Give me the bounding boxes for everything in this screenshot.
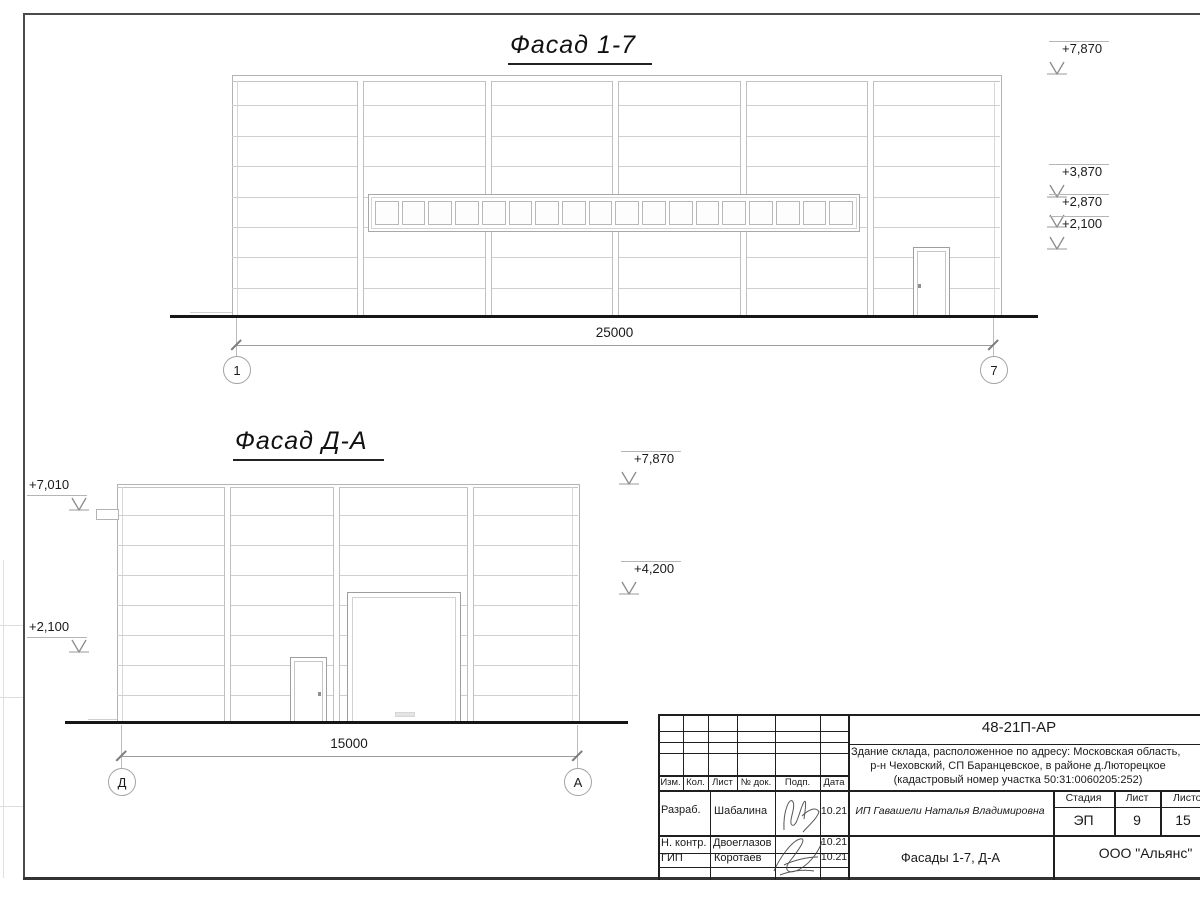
- window-pane: [428, 201, 452, 225]
- panel-line: [117, 575, 578, 576]
- titleblock-hline: [658, 742, 848, 743]
- axis-label: 7: [990, 363, 997, 378]
- level-value: +4,200: [634, 561, 674, 576]
- window-pane: [402, 201, 426, 225]
- rev-header-kol: Кол.: [683, 777, 708, 788]
- dimension-value: 25000: [236, 325, 993, 340]
- axis-bubble-1: 1: [223, 356, 251, 384]
- rev-header-list: Лист: [708, 777, 737, 788]
- column-line: [333, 487, 340, 722]
- role-name: Коротаев: [714, 852, 762, 865]
- edge-line: [994, 81, 995, 316]
- window-pane: [375, 201, 399, 225]
- window-pane: [669, 201, 693, 225]
- axis-bubble-a: А: [564, 768, 592, 796]
- window-pane: [803, 201, 827, 225]
- door-leaf: [917, 251, 946, 317]
- column-line: [467, 487, 474, 722]
- titleblock-address-line1: Здание склада, расположенное по адресу: …: [851, 746, 1180, 759]
- rev-header-doc: № док.: [737, 777, 775, 788]
- sheet-frame-top: [23, 13, 1200, 15]
- window-pane: [722, 201, 746, 225]
- window-pane: [749, 201, 773, 225]
- panel-line: [117, 515, 578, 516]
- facade-da-title-text: Фасад Д-А: [235, 427, 368, 455]
- stage-value: ЭП: [1053, 812, 1114, 829]
- signature-shabalina: [778, 792, 822, 836]
- door: [913, 247, 950, 318]
- sheet-frame-left: [23, 13, 25, 880]
- sheet-number: 9: [1114, 812, 1160, 829]
- gate-handle: [395, 712, 415, 717]
- role-label: ГИП: [661, 852, 683, 865]
- column-line: [357, 81, 364, 316]
- signature-koротаев: [770, 831, 828, 879]
- company-name: ООО "Альянс": [1053, 845, 1200, 862]
- titleblock-hline: [658, 753, 848, 754]
- margin-divider-vertical: [3, 560, 4, 878]
- parapet-line: [117, 487, 578, 488]
- column-line: [867, 81, 874, 316]
- sheet-label: Лист: [1114, 792, 1160, 805]
- dimension-line: [236, 345, 993, 346]
- drawing-sheet: Фасад 1-7 Фасад Д-А +7,870 +3,870 +2,870…: [0, 0, 1200, 900]
- extension-line: [577, 725, 578, 768]
- axis-label: Д: [118, 775, 127, 790]
- level-value: +7,010: [29, 477, 69, 492]
- window-pane: [615, 201, 639, 225]
- axis-label: 1: [233, 363, 240, 378]
- titleblock-address-line2: р-н Чеховский, СП Баранцевское, в районе…: [848, 760, 1188, 773]
- extension-line: [993, 318, 994, 357]
- axis-bubble-d: Д: [108, 768, 136, 796]
- titleblock-hline: [658, 714, 1200, 716]
- window-strip: [368, 194, 860, 232]
- titleblock-address-line3: (кадастровый номер участка 50:31:0060205…: [848, 774, 1188, 787]
- gate: [347, 592, 461, 724]
- ramp-line: [190, 312, 232, 313]
- titleblock-hline: [658, 731, 848, 732]
- client-name: ИП Гавашели Наталья Владимировна: [850, 805, 1050, 818]
- gate-frame: [352, 597, 456, 723]
- stage-label: Стадия: [1053, 792, 1114, 805]
- level-value: +2,100: [1062, 216, 1102, 231]
- facade-da-title: Фасад Д-А: [233, 427, 384, 461]
- level-value: +7,870: [634, 451, 674, 466]
- window-pane: [696, 201, 720, 225]
- axis-label: А: [574, 775, 583, 790]
- door-handle: [318, 692, 321, 696]
- titleblock-code: 48-21П-АР: [848, 719, 1190, 737]
- door: [290, 657, 327, 724]
- role-label: Разраб.: [661, 804, 701, 817]
- window-pane: [509, 201, 533, 225]
- window-pane: [562, 201, 586, 225]
- level-value: +2,100: [29, 619, 69, 634]
- level-value: +2,870: [1062, 194, 1102, 209]
- role-date: 10.21: [820, 805, 848, 818]
- window-strip-frame: [371, 197, 857, 229]
- rev-header-data: Дата: [820, 777, 848, 788]
- level-value: +7,870: [1062, 41, 1102, 56]
- canopy: [96, 509, 119, 520]
- sheets-total: 15: [1160, 812, 1200, 829]
- window-pane: [776, 201, 800, 225]
- window-pane: [642, 201, 666, 225]
- titleblock-hline: [1053, 807, 1200, 808]
- facade-1-7-title: Фасад 1-7: [508, 31, 652, 65]
- rev-header-izm: Изм.: [658, 777, 683, 788]
- window-pane: [535, 201, 559, 225]
- titleblock-hline: [848, 744, 1200, 745]
- ramp-line: [88, 719, 117, 720]
- facade-1-7-title-text: Фасад 1-7: [510, 31, 636, 59]
- titleblock-vline: [658, 714, 660, 880]
- rev-header-podp: Подп.: [775, 777, 820, 788]
- ground-line-facade-1-7: [170, 315, 1038, 318]
- role-name: Шабалина: [714, 805, 767, 818]
- window-pane: [589, 201, 613, 225]
- sheet-title: Фасады 1-7, Д-А: [848, 850, 1053, 866]
- door-handle: [918, 284, 921, 288]
- level-value: +3,870: [1062, 164, 1102, 179]
- sheet-frame-bottom: [23, 877, 1200, 880]
- axis-bubble-7: 7: [980, 356, 1008, 384]
- window-pane: [829, 201, 853, 225]
- window-pane: [455, 201, 479, 225]
- sheets-label: Листов: [1160, 792, 1200, 805]
- dimension-value: 15000: [121, 736, 577, 751]
- window-pane: [482, 201, 506, 225]
- role-name: Двоеглазов: [713, 837, 771, 850]
- column-line: [224, 487, 231, 722]
- ground-line-facade-da: [65, 721, 628, 725]
- role-label: Н. контр.: [661, 837, 706, 850]
- dimension-line: [121, 756, 577, 757]
- edge-line: [237, 81, 238, 316]
- panel-line: [117, 545, 578, 546]
